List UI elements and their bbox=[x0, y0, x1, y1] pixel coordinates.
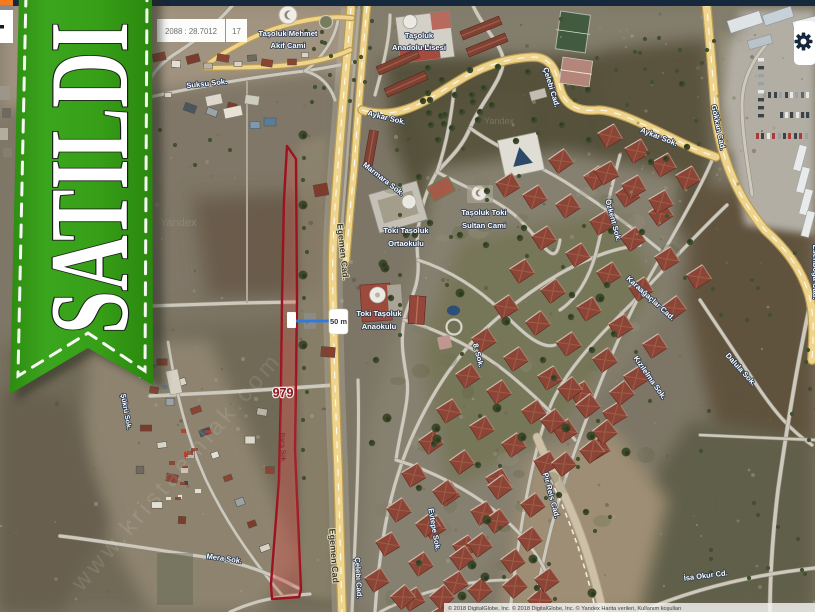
svg-text:Ortaokulu: Ortaokulu bbox=[388, 239, 424, 248]
svg-text:SATILDI: SATILDI bbox=[28, 22, 152, 334]
svg-text:Akif Cami: Akif Cami bbox=[270, 41, 305, 50]
svg-text:Toki Taşoluk: Toki Taşoluk bbox=[383, 226, 429, 235]
svg-text:Yandex: Yandex bbox=[160, 217, 197, 229]
svg-text:© 2018 DigitalGlobe, Inc. © 20: © 2018 DigitalGlobe, Inc. © 2018 Digital… bbox=[448, 605, 682, 612]
svg-text:50 m: 50 m bbox=[330, 317, 347, 326]
svg-text:Toki Taşoluk: Toki Taşoluk bbox=[356, 309, 402, 318]
svg-text:Barış Sok.: Barış Sok. bbox=[278, 433, 286, 463]
svg-text:Anadolu Lisesi: Anadolu Lisesi bbox=[392, 43, 446, 52]
svg-text:Yandex: Yandex bbox=[484, 116, 514, 126]
svg-text:Sultan Cami: Sultan Cami bbox=[462, 221, 506, 230]
svg-text:17: 17 bbox=[232, 27, 241, 36]
svg-text:Anaokulu: Anaokulu bbox=[362, 322, 397, 331]
svg-text:Taşoluk: Taşoluk bbox=[405, 31, 434, 40]
svg-text:Taşoluk Mehmet: Taşoluk Mehmet bbox=[259, 29, 318, 38]
svg-text:Taşoluk Toki: Taşoluk Toki bbox=[461, 208, 506, 217]
svg-text:Esenboğa Cad.: Esenboğa Cad. bbox=[811, 245, 815, 300]
svg-text:2088 : 28.7012: 2088 : 28.7012 bbox=[165, 27, 217, 36]
svg-text:979: 979 bbox=[273, 386, 294, 400]
